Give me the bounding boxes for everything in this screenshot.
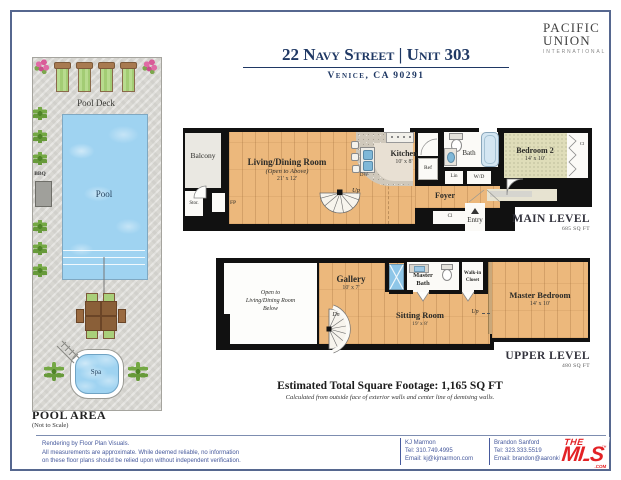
dishwasher-label: DW [355, 173, 373, 178]
wall [459, 262, 462, 292]
toilet-icon [442, 269, 452, 281]
disclaimer-line2: All measurements are approximate. While … [42, 449, 372, 458]
entry-arrow-icon [471, 208, 479, 214]
washer-dryer-label: W/D [466, 174, 492, 180]
spa-label: Spa [70, 368, 122, 376]
patio-chair-icon [103, 330, 115, 339]
master-bedroom-dims: 14' x 10' [500, 301, 580, 307]
disclaimer-line1: Rendering by Floor Plan Visuals. [42, 440, 372, 449]
wall [429, 290, 462, 294]
sitting-room-dims: 19' x 8' [385, 321, 455, 327]
open-to-below-line2: Living/Dining Room [224, 298, 317, 304]
master-bath-line1: Master [406, 272, 440, 279]
wall [389, 290, 413, 294]
plant-icon [33, 130, 47, 143]
step-up-label: Up [466, 309, 484, 315]
footer-disclaimer: Rendering by Floor Plan Visuals. All mea… [42, 440, 372, 466]
pool-deck-label: Pool Deck [32, 98, 160, 108]
open-to-below-line1: Open to [224, 290, 317, 296]
kitchen-sink-icon [360, 147, 375, 173]
agent1-email: Email: kj@kjmarmon.com [405, 455, 485, 463]
mls-logo: THE ™ MLS .COM [558, 437, 609, 469]
gallery-label: Gallery [320, 274, 382, 284]
open-to-below-line3: Below [224, 306, 317, 312]
kitchen-label: Kitchen [382, 149, 426, 158]
living-room-note: (Open to Above) [212, 168, 362, 175]
wall [474, 290, 488, 294]
refrigerator-label: Ref [417, 165, 439, 171]
flower-plant-icon [34, 59, 50, 74]
upper-level-sqft: 480 SQ FT [480, 363, 590, 369]
upper-level-label: UPPER LEVEL [480, 350, 590, 362]
agent1-tel: Tel: 310.749.4995 [405, 447, 485, 455]
walkin-line2: Closet [460, 278, 485, 283]
patio-bench-icon [76, 309, 84, 323]
footer-vline [400, 438, 401, 465]
shower-icon [389, 264, 404, 290]
foyer-label: Foyer [420, 191, 470, 200]
master-bedroom [492, 262, 588, 338]
plant-icon [33, 264, 47, 277]
patio-chair-icon [86, 330, 98, 339]
linen-label: Lin [444, 174, 464, 179]
pool-steps [63, 250, 145, 251]
lounge-chair-icon [98, 62, 115, 92]
living-room-label: Living/Dining Room [212, 157, 362, 167]
walkin-closet [462, 262, 483, 292]
stairs-dn-label: Dn [326, 312, 346, 318]
lounge-chair-icon [120, 62, 137, 92]
sitting-room-label: Sitting Room [385, 310, 455, 320]
bar-stool-icon [351, 141, 359, 149]
patio-bench-icon [118, 309, 126, 323]
bathtub-icon [481, 132, 499, 167]
plant-icon [33, 220, 47, 233]
main-level-sqft: 685 SQ FT [480, 226, 590, 232]
stove-icon [386, 132, 414, 143]
bbq-icon [35, 181, 52, 207]
lounge-chair-icon [76, 62, 93, 92]
main-level-label: MAIN LEVEL [480, 213, 590, 225]
master-bath-line2: Bath [406, 280, 440, 287]
window [384, 128, 410, 133]
fireplace [212, 193, 225, 212]
plant-icon [33, 242, 47, 255]
patio-table-icon [85, 301, 117, 331]
floor-plan-page: PACIFIC UNION INTERNATIONAL 22 Navy Stre… [0, 0, 621, 480]
gallery-dims: 10' x 7' [320, 285, 382, 291]
bbq-label: BBQ [28, 171, 52, 177]
step-threshold [488, 262, 492, 334]
pool-label: Pool [62, 189, 146, 199]
page-subtitle: Venice, CA 90291 [243, 71, 509, 81]
plant-icon [33, 107, 47, 120]
bedroom2-closet-label: Cl [576, 141, 588, 146]
bedroom2-closet [567, 133, 588, 178]
wall [385, 262, 389, 292]
step-up-arrow-icon [482, 313, 490, 314]
master-bedroom-label: Master Bedroom [500, 290, 580, 300]
pool-area-title: POOL AREA [32, 408, 106, 423]
bedroom2-label: Bedroom 2 [506, 146, 564, 155]
palm-plant-icon [128, 362, 148, 381]
agent1-name: KJ Marmon [405, 439, 485, 447]
brand-line3: INTERNATIONAL [543, 49, 607, 55]
disclaimer-line3: on these floor plans should be relied up… [42, 457, 372, 466]
plant-icon [33, 152, 47, 165]
mls-logo-com: .COM [594, 464, 606, 469]
footer-divider [36, 435, 606, 436]
pool-steps [63, 264, 145, 265]
storage-label: Stor. [184, 201, 204, 206]
lounge-chair-icon [54, 62, 71, 92]
total-sqft-line: Estimated Total Square Footage: 1,165 SQ… [230, 380, 550, 392]
walkin-line1: Walk-in [460, 271, 485, 276]
brand-line2: UNION [543, 34, 607, 47]
bedroom2-dims: 14' x 10' [506, 156, 564, 162]
flower-plant-icon [142, 59, 158, 74]
bath-label: Bath [456, 149, 482, 157]
footer-vline [489, 438, 490, 465]
agent1-info: KJ Marmon Tel: 310.749.4995 Email: kj@kj… [405, 439, 485, 463]
outdoor-table-set [76, 293, 126, 337]
fireplace-label: FP [226, 200, 240, 206]
pool-area-scale-note: (Not to Scale) [32, 422, 68, 429]
pool-steps [63, 257, 145, 258]
page-title: 22 Navy Street | Unit 303 [243, 45, 509, 68]
living-room-dims: 21' x 12' [212, 176, 362, 182]
brand-logo: PACIFIC UNION INTERNATIONAL [543, 21, 607, 55]
palm-plant-icon [44, 362, 64, 381]
stairs-up-label: Up [346, 187, 366, 194]
upper-wall-stub [216, 314, 230, 350]
total-sqft-note: Calculated from outside face of exterior… [230, 394, 550, 401]
entry-mat [490, 191, 532, 197]
